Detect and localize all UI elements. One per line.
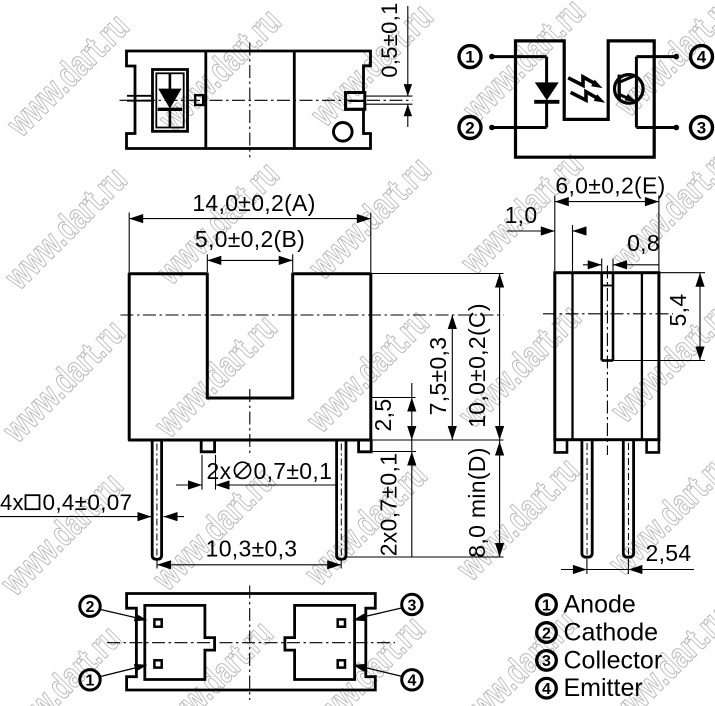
svg-text:1: 1	[465, 48, 474, 67]
svg-text:1: 1	[86, 673, 95, 690]
svg-text:8,0 min(D): 8,0 min(D)	[464, 447, 490, 557]
svg-text:10,0±0,2(C): 10,0±0,2(C)	[464, 303, 490, 428]
svg-text:4: 4	[542, 681, 551, 698]
svg-text:0,4±0,07: 0,4±0,07	[43, 490, 133, 515]
svg-text:2,5: 2,5	[370, 399, 396, 432]
svg-text:1,0: 1,0	[505, 202, 538, 228]
svg-text:5,0±0,2(B): 5,0±0,2(B)	[195, 226, 305, 252]
svg-text:6,0±0,2(E): 6,0±0,2(E)	[555, 173, 665, 199]
svg-text:2: 2	[465, 119, 474, 138]
svg-text:Anode: Anode	[564, 591, 636, 619]
svg-text:2x: 2x	[207, 458, 232, 484]
svg-text:5,4: 5,4	[665, 294, 691, 327]
svg-text:2x0,7±0,1: 2x0,7±0,1	[376, 453, 402, 557]
svg-text:4: 4	[407, 673, 416, 690]
svg-text:4: 4	[697, 48, 707, 67]
svg-text:14,0±0,2(A): 14,0±0,2(A)	[192, 190, 315, 216]
svg-text:Collector: Collector	[564, 646, 663, 674]
svg-text:7,5±0,3: 7,5±0,3	[425, 337, 451, 416]
svg-text:2,54: 2,54	[646, 540, 692, 566]
svg-text:1: 1	[542, 597, 551, 614]
svg-text:2: 2	[542, 625, 551, 642]
svg-text:10,3±0,3: 10,3±0,3	[206, 536, 298, 562]
svg-text:0,7±0,1: 0,7±0,1	[254, 458, 333, 484]
svg-text:Cathode: Cathode	[564, 619, 659, 647]
svg-text:2: 2	[86, 599, 95, 616]
svg-text:3: 3	[697, 119, 706, 138]
svg-text:0,5±0,1: 0,5±0,1	[377, 2, 402, 77]
svg-text:3: 3	[407, 597, 416, 614]
svg-text:3: 3	[542, 653, 551, 670]
svg-text:4x: 4x	[0, 490, 24, 515]
svg-text:Emitter: Emitter	[564, 674, 643, 702]
svg-text:0,8: 0,8	[627, 230, 660, 256]
